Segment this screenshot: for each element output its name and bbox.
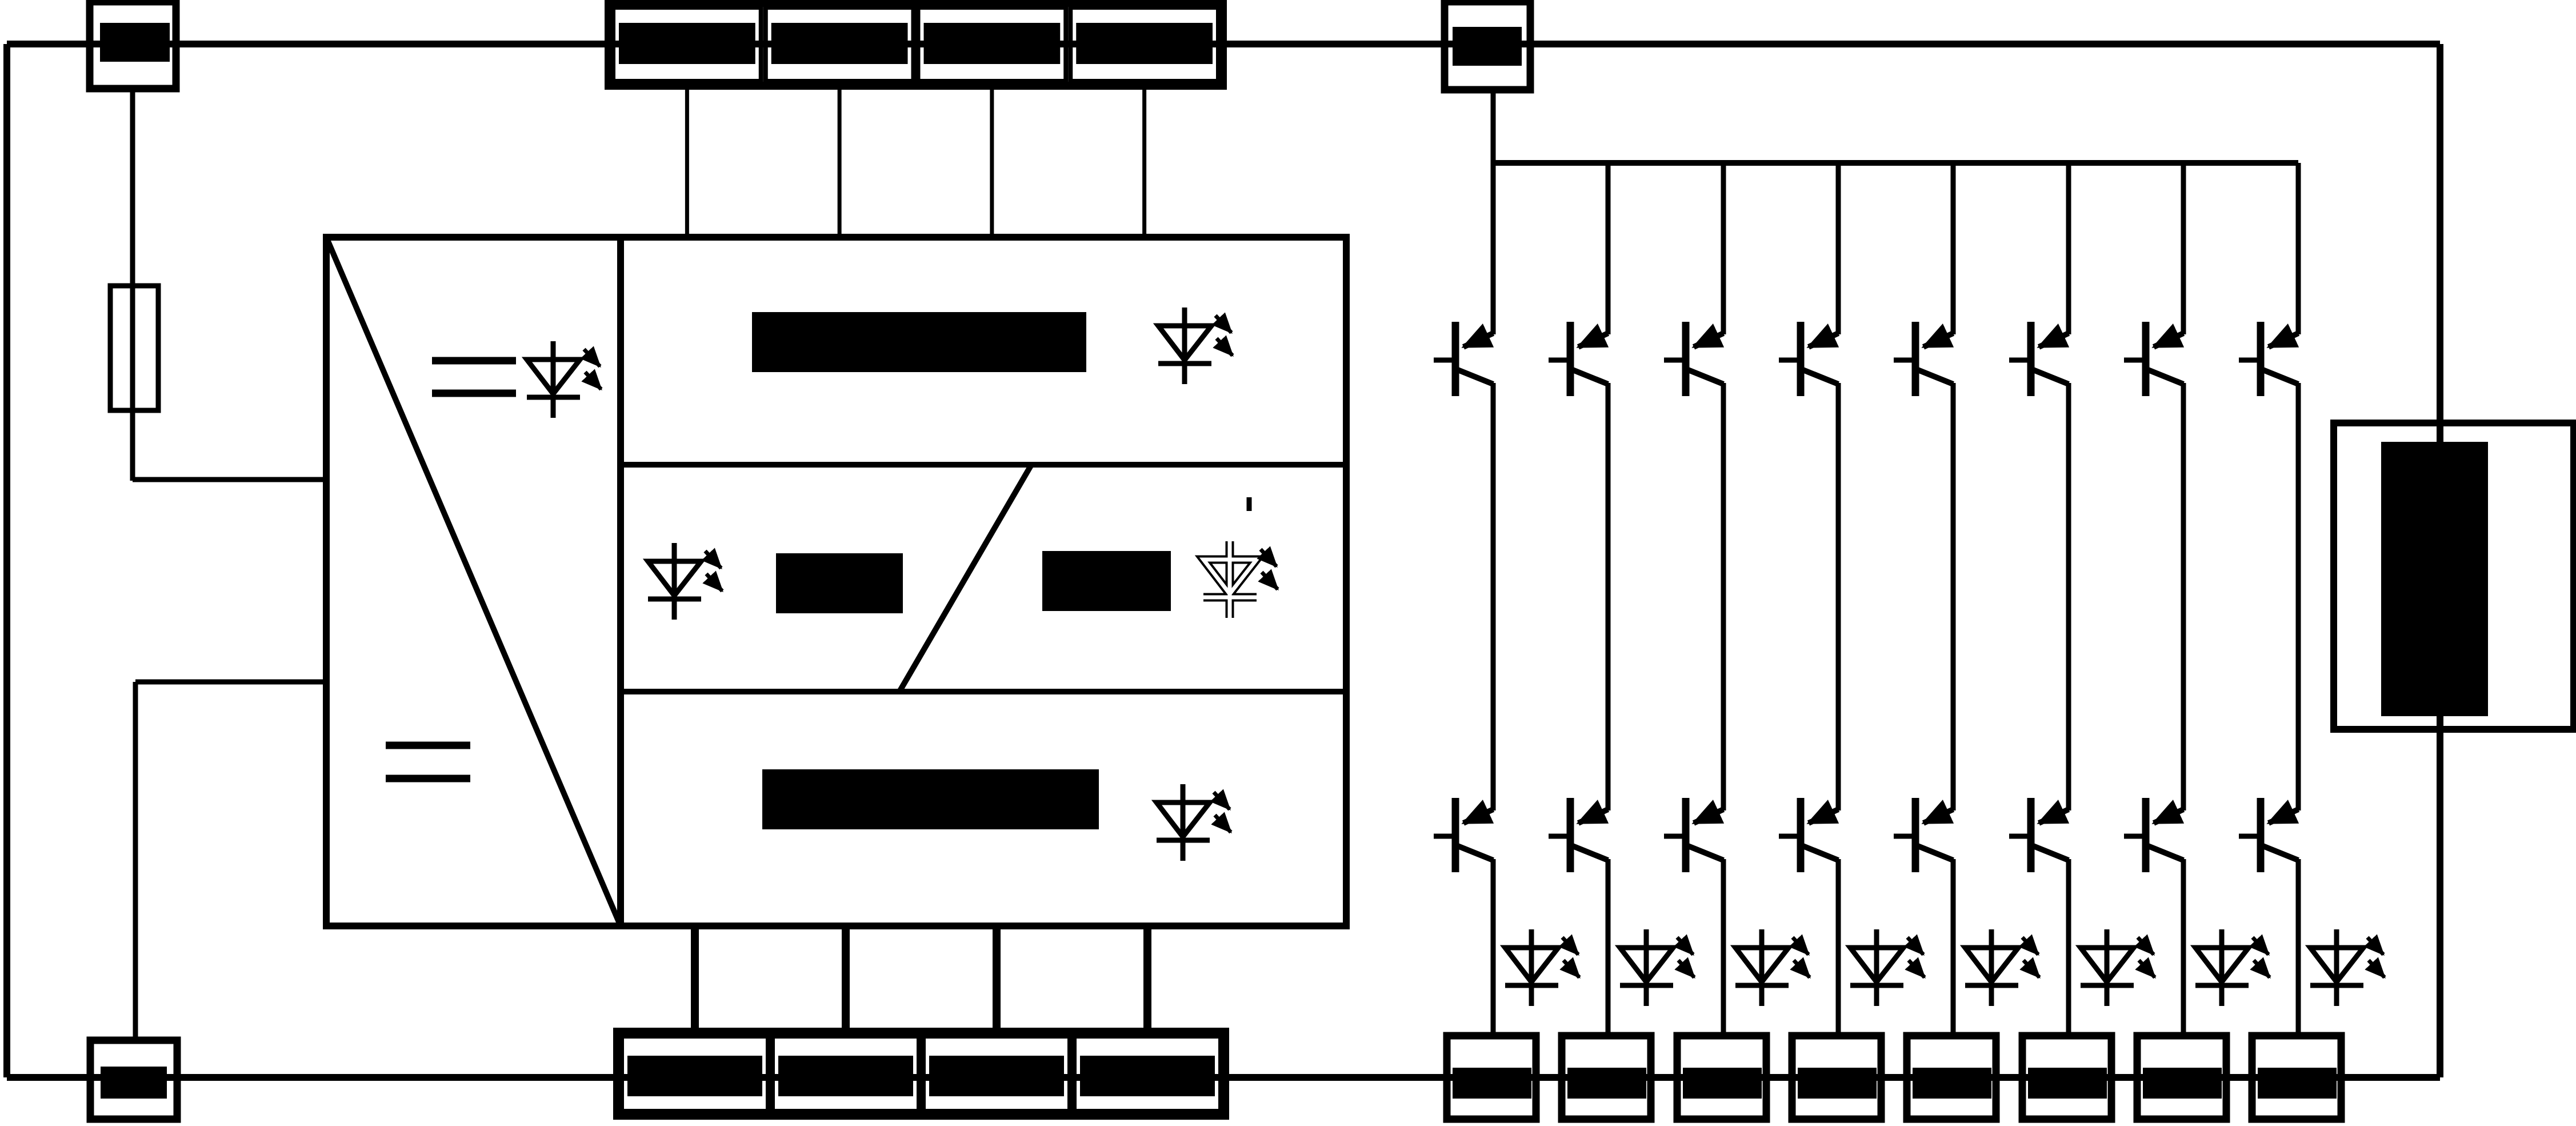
redaction-bar bbox=[1453, 27, 1522, 66]
redaction-bar bbox=[1453, 1068, 1531, 1099]
schematic-page bbox=[0, 0, 2576, 1126]
redaction-bar bbox=[771, 23, 908, 64]
redaction-bar bbox=[1042, 551, 1171, 611]
redaction-bar bbox=[2143, 1068, 2222, 1099]
redaction-bar bbox=[1076, 23, 1213, 64]
redaction-bar bbox=[1567, 1068, 1646, 1099]
redaction-bar bbox=[1683, 1068, 1762, 1099]
redaction-bar bbox=[2028, 1068, 2107, 1099]
redaction-bar bbox=[929, 1056, 1064, 1096]
redaction-bar bbox=[762, 769, 1099, 829]
redaction-bar bbox=[100, 23, 170, 62]
redaction-bar bbox=[776, 553, 903, 613]
redaction-bar bbox=[778, 1056, 913, 1096]
redaction-bar bbox=[1913, 1068, 1991, 1099]
redaction-bar bbox=[1798, 1068, 1877, 1099]
redaction-bar bbox=[924, 23, 1061, 64]
redaction-bar bbox=[619, 23, 755, 64]
circuit-schematic bbox=[0, 0, 2576, 1126]
redaction-bar bbox=[752, 312, 1086, 372]
redaction-bar bbox=[2258, 1068, 2337, 1099]
redaction-bar bbox=[627, 1056, 762, 1096]
redaction-bar bbox=[2381, 442, 2488, 716]
redaction-bar bbox=[101, 1067, 167, 1099]
redaction-bar bbox=[1080, 1056, 1215, 1096]
